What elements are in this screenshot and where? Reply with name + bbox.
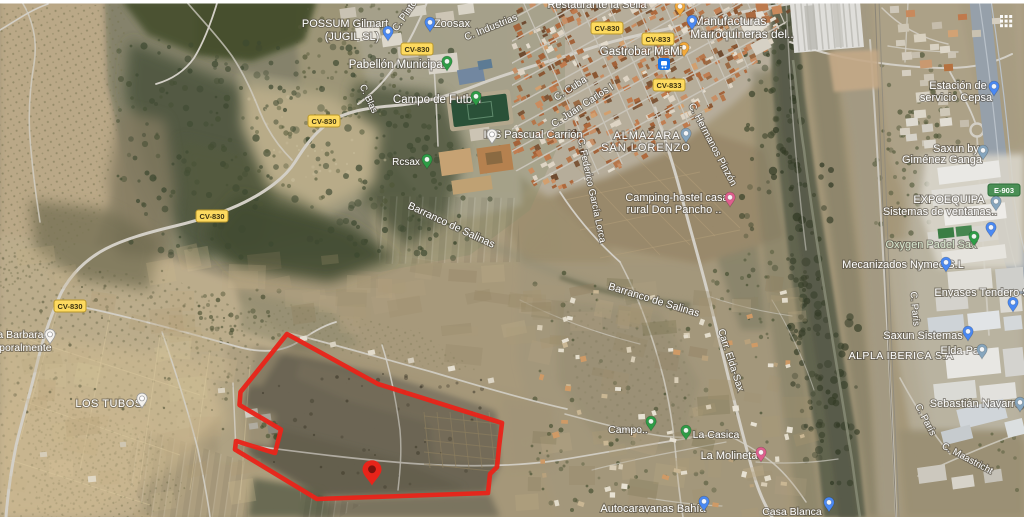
svg-text:Estación de: Estación de — [929, 80, 986, 92]
svg-text:Zoosax: Zoosax — [434, 18, 471, 30]
svg-text:CV-833: CV-833 — [656, 81, 681, 90]
svg-text:ALMAZARA: ALMAZARA — [613, 130, 680, 142]
svg-text:POSSUM Gilmart: POSSUM Gilmart — [302, 18, 388, 30]
svg-text:IES Pascual Carrión: IES Pascual Carrión — [483, 129, 582, 141]
svg-text:...poralmente: ...poralmente — [0, 342, 52, 354]
svg-text:CV-830: CV-830 — [594, 24, 619, 33]
svg-text:CV-830: CV-830 — [404, 45, 429, 54]
svg-text:Pabellón Municipal: Pabellón Municipal — [349, 59, 446, 71]
svg-text:CV-830: CV-830 — [311, 117, 336, 126]
svg-text:SAN LORENZO: SAN LORENZO — [601, 142, 691, 154]
svg-text:ALPLA IBERICA S.A: ALPLA IBERICA S.A — [849, 350, 954, 362]
svg-text:Campo de Futbol: Campo de Futbol — [393, 94, 481, 106]
svg-text:Saxun Sistemas: Saxun Sistemas — [883, 330, 963, 342]
svg-text:Campo..: Campo.. — [608, 424, 648, 436]
svg-text:Camping-hostel casa: Camping-hostel casa — [625, 192, 729, 204]
svg-text:servicio Cepsa: servicio Cepsa — [920, 92, 993, 104]
svg-text:Casa Blanca: Casa Blanca — [762, 506, 822, 517]
svg-text:LOS TUBOS: LOS TUBOS — [75, 398, 142, 410]
svg-text:CV-830: CV-830 — [57, 302, 82, 311]
svg-text:Oxygen Padel Sax: Oxygen Padel Sax — [885, 239, 977, 251]
svg-text:Envases Tendero S: Envases Tendero S — [934, 287, 1024, 299]
svg-text:Giménez Ganga: Giménez Ganga — [902, 154, 983, 166]
svg-text:E-903: E-903 — [994, 186, 1014, 195]
svg-text:Sebastián Navarro, S: Sebastián Navarro, S — [930, 398, 1024, 410]
svg-text:Rcsax: Rcsax — [392, 157, 420, 168]
svg-text:Manufacturas: Manufacturas — [694, 14, 767, 28]
svg-text:Marroquineras del..: Marroquineras del.. — [690, 27, 793, 41]
svg-text:rural Don Pancho ..: rural Don Pancho .. — [627, 204, 722, 216]
svg-text:CV-833: CV-833 — [645, 35, 670, 44]
svg-text:CV-830: CV-830 — [199, 212, 224, 221]
svg-text:La Casica: La Casica — [693, 429, 740, 441]
svg-text:EXPOEQUIPA: EXPOEQUIPA — [913, 194, 985, 206]
svg-text:Autocaravanas Bahía: Autocaravanas Bahía — [600, 503, 706, 515]
svg-text:Sistemas de ventanas..: Sistemas de ventanas.. — [883, 206, 997, 218]
svg-text:(JUGIL SL): (JUGIL SL) — [325, 31, 380, 43]
svg-text:La Molineta: La Molineta — [701, 450, 759, 462]
svg-text:ta Barbara: ta Barbara — [0, 329, 44, 341]
svg-text:Elda Pal: Elda Pal — [941, 345, 982, 357]
svg-text:Gastrobar MaMi: Gastrobar MaMi — [600, 46, 682, 58]
